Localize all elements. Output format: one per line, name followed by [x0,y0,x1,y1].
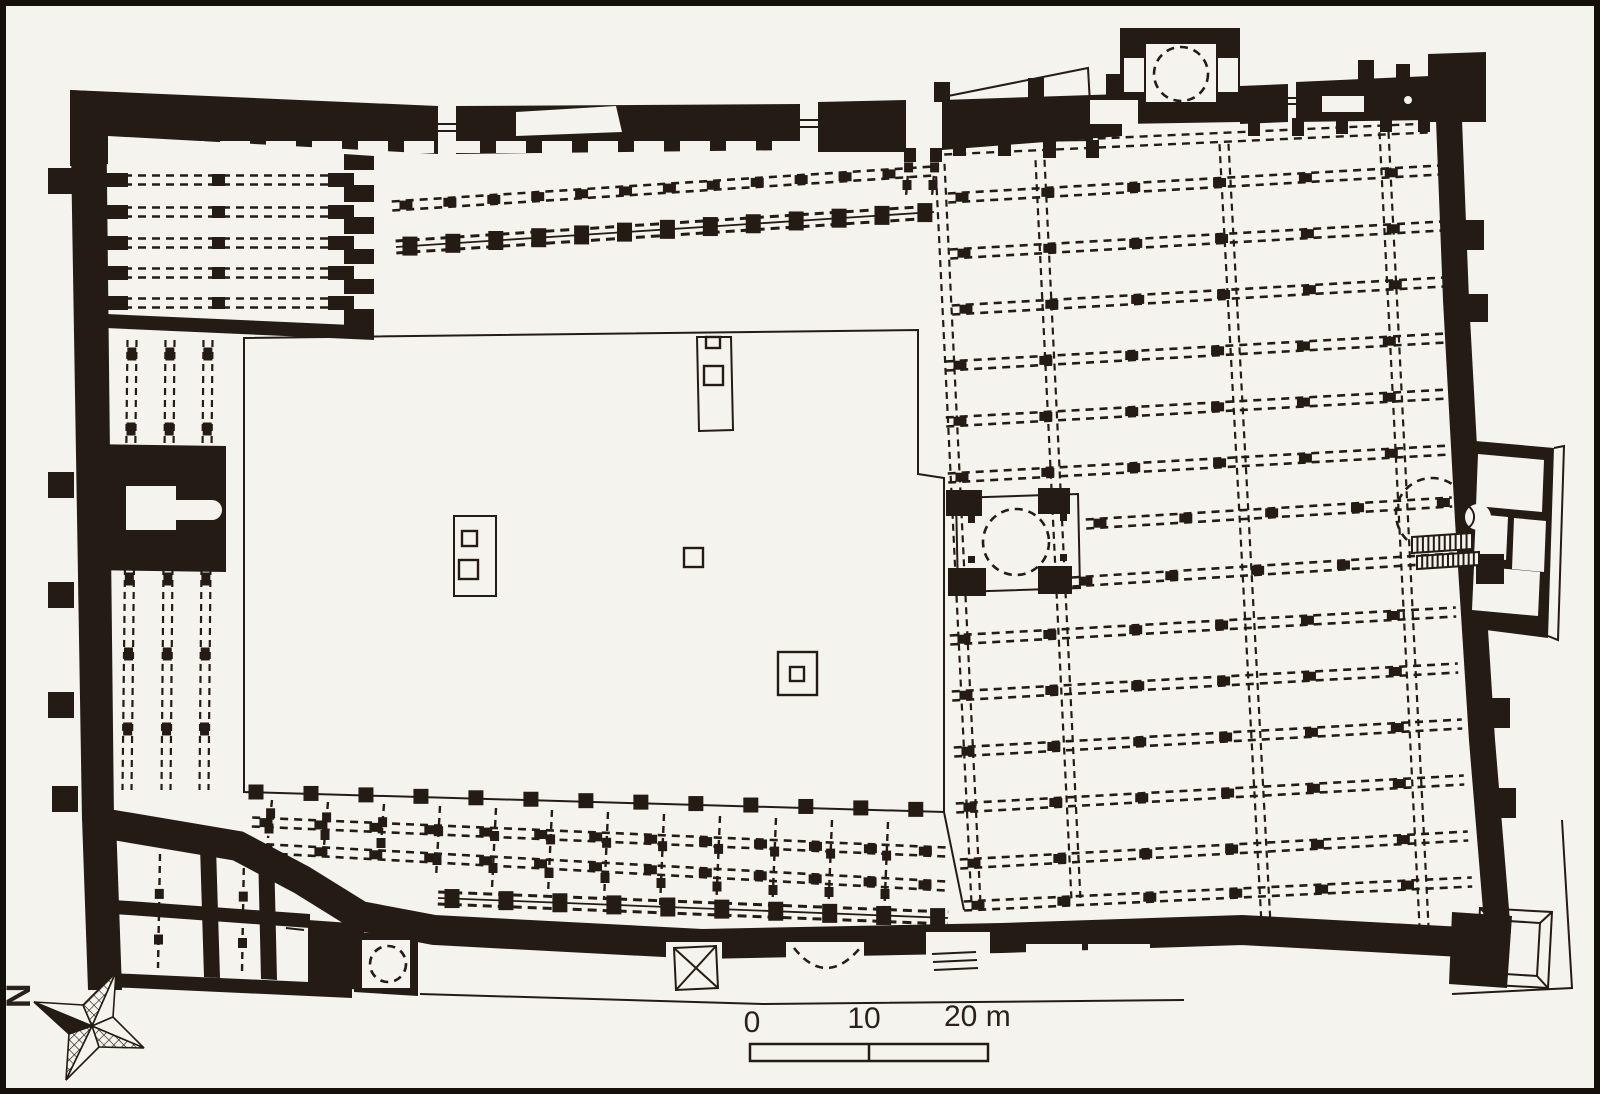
pier [881,889,890,899]
pier [619,186,632,195]
pier-block [946,490,982,516]
pier [1041,188,1054,197]
pier [488,231,503,250]
pier [1057,897,1070,906]
pier [163,572,172,585]
pier [127,422,136,435]
wall-opening [1146,44,1216,102]
pier [660,898,675,917]
pier [1135,793,1148,802]
pier [154,935,163,945]
pier-block [1482,698,1510,728]
pier [1215,234,1228,243]
floor-plan-svg: N01020 m [0,0,1600,1094]
pier [699,837,712,846]
pier-block [1248,118,1260,136]
pier [239,892,248,902]
pier [1301,616,1314,625]
pier [754,871,767,880]
pier [1133,737,1146,746]
pier [314,847,327,856]
wall-opening [1124,58,1144,92]
pier-block [930,148,942,162]
pier-block [948,568,986,596]
pier [203,422,212,435]
pier-block [1380,114,1392,132]
pier-block [102,236,128,250]
pier-block [904,148,916,162]
pier [531,228,546,247]
pier [1391,723,1404,732]
pier-block [212,267,225,279]
wall-opening [1322,96,1364,112]
pier [904,162,913,172]
pier-block [968,556,975,563]
pier [124,647,133,660]
pier [809,842,822,851]
pier [743,798,758,813]
pier [1311,840,1324,849]
pier-block [1488,788,1516,818]
pier [918,880,931,889]
pier [839,172,852,181]
pier [1039,412,1052,421]
pier [798,799,813,814]
pier [929,180,938,190]
pier [601,873,610,883]
wall-opening [1088,944,1150,986]
pier [1229,889,1242,898]
pier [606,895,621,914]
pier [165,422,174,435]
pier-block [1358,60,1374,80]
pier [644,865,657,874]
wall-notch [266,141,296,153]
pier [545,868,554,878]
pier [127,347,136,360]
pier [589,862,602,871]
pier [930,162,939,172]
scale-label: 0 [744,1006,761,1039]
pier [1219,733,1232,742]
pier [1299,454,1312,463]
wall-notch [772,141,802,153]
pier-block [212,206,225,218]
pier-block [1060,554,1067,561]
pier [789,211,804,230]
pier [1127,183,1140,192]
pier-block [998,138,1011,156]
pier [546,834,555,844]
pier [955,473,968,482]
pier [1297,398,1310,407]
pier [378,817,387,827]
wall-notch [220,141,250,153]
pier-block [328,173,354,187]
wall-notch [312,141,342,153]
wall-opening [1476,454,1544,512]
pier [1389,667,1402,676]
wall-niche [166,500,222,520]
pier [714,844,723,854]
pier [746,214,761,233]
pier [971,901,984,910]
pier [402,237,417,256]
pier [433,855,442,865]
pier [1131,681,1144,690]
pier [574,225,589,244]
pier [633,795,648,810]
pier [1215,620,1228,629]
pier [534,830,547,839]
pier [399,201,412,210]
pier-block [328,296,354,310]
pier [919,847,932,856]
pier [531,192,544,201]
pier [489,863,498,873]
pier [534,859,547,868]
wall-notch [542,141,572,153]
pier [768,902,783,921]
pier [434,826,443,836]
pier [1127,463,1140,472]
pier-block [1060,514,1067,521]
pier [200,722,209,735]
pier [853,800,868,815]
pier [1401,881,1414,890]
pier [903,180,912,190]
page-root: N01020 m [0,0,1600,1094]
pier [660,220,675,239]
pier-block [328,236,354,250]
wall-notch [588,141,618,153]
pier [707,181,720,190]
pier [959,305,972,314]
pier [957,249,970,258]
pier-block [1292,118,1304,136]
pier [377,838,386,848]
pier-block [1418,114,1430,132]
pier-block [1086,140,1099,158]
pier [1139,849,1152,858]
pier [1211,346,1224,355]
pier [1179,513,1192,522]
pier [123,722,132,735]
minbar-stair [1412,533,1472,553]
pier [955,193,968,202]
pier [322,812,331,822]
pier [825,887,834,897]
pier [155,889,164,899]
pier [864,877,877,886]
pier [1301,229,1314,238]
pier [713,882,722,892]
pier [1043,630,1056,639]
pier [1307,784,1320,793]
pier [1041,468,1054,477]
pier-block [1106,74,1122,96]
pier [201,647,210,660]
pier [751,178,764,187]
pier [487,195,500,204]
pier [203,347,212,360]
pier [644,835,657,844]
pier [498,891,513,910]
pier [201,572,210,585]
wall-notch [634,141,664,153]
pier [1213,178,1226,187]
pier [882,851,891,861]
pier-block [934,82,950,102]
wall-notch [496,141,526,153]
pier [917,203,932,222]
pier-block [1396,64,1410,82]
pier-block [1038,488,1070,514]
pier-block [968,516,975,523]
pier [589,832,602,841]
pier [1393,779,1406,788]
pier [1125,407,1138,416]
pier [699,868,712,877]
pier [953,417,966,426]
pier-block [328,205,354,219]
pier-block [1458,220,1484,250]
scale-label: 10 [847,1002,880,1035]
pier [552,893,567,912]
pier-block [52,786,78,812]
pier [1125,351,1138,360]
pier-block [1043,140,1056,158]
wall-notch [450,141,480,153]
pier [1079,577,1092,586]
pier [321,830,330,840]
pier [663,184,676,193]
pier [1297,341,1310,350]
pier [1315,885,1328,894]
pier [165,347,174,360]
pier-block [212,237,225,249]
pier [754,839,767,848]
pier [445,234,460,253]
pier [1251,566,1264,575]
pier [1337,560,1350,569]
pier [163,647,172,660]
pier-block [1028,78,1044,98]
pier [809,874,822,883]
pier [1053,854,1066,863]
pier [602,838,611,848]
wall-notch [726,141,756,153]
pier [1305,728,1318,737]
pier [1303,672,1316,681]
pier-block [1038,566,1072,594]
pier [266,808,275,818]
pier [769,885,778,895]
pier [162,722,171,735]
pier [795,175,808,184]
pier-block [1336,116,1348,134]
pier [1265,508,1278,517]
pier-block [48,692,74,718]
scale-label: 20 m [944,1000,1011,1033]
pier [1049,798,1062,807]
wall-segment [1240,84,1288,124]
pier [770,847,779,857]
pier [658,841,667,851]
pier [444,889,459,908]
pier [826,849,835,859]
pier [575,189,588,198]
pier [1211,402,1224,411]
pier [703,217,718,236]
wall-notch [680,141,710,153]
pier [1165,571,1178,580]
pier [882,169,895,178]
pier [1129,625,1142,634]
pier [1213,458,1226,467]
pier-block [1462,294,1488,322]
wall-opening [1090,100,1138,124]
pier [1047,742,1060,751]
pier [1045,686,1058,695]
wall-notch [404,141,434,153]
pier [1129,239,1142,248]
pier-block [212,297,225,309]
pier [688,796,703,811]
pier-block [953,138,966,156]
pier-block [1476,554,1504,584]
pier [238,938,247,948]
pier [1143,893,1156,902]
pier [657,878,666,888]
pier [265,824,274,834]
pier [908,802,923,817]
pier [1397,835,1410,844]
pier [1299,173,1312,182]
pier [822,904,837,923]
pier-block [102,173,128,187]
pier-block [102,296,128,310]
wall-opening [1512,518,1546,572]
wall-opening [786,942,864,992]
pier [1351,503,1364,512]
pier-block [48,472,74,498]
pier [617,223,632,242]
pier [864,844,877,853]
pier [1303,285,1316,294]
wall-notch [174,141,204,153]
wall-notch [128,141,158,153]
pier [1217,676,1230,685]
wall-ring-detail [1403,95,1413,105]
pier [874,206,889,225]
wall-opening [1218,58,1238,92]
wall-notch [358,141,388,153]
pier [443,198,456,207]
pier [1387,611,1400,620]
pier [125,572,134,585]
pier-block [48,582,74,608]
pier-block [328,266,354,280]
wall-segment [818,100,906,152]
pier-block [212,174,225,186]
pier [490,831,499,841]
pier [1221,789,1234,798]
pier-block [102,266,128,280]
mihrab-niche [1465,504,1491,530]
pier [1437,498,1450,507]
pier [832,209,847,228]
pier [1131,295,1144,304]
pier [1093,519,1106,528]
pier-block [48,168,74,194]
pier-block [102,205,128,219]
pier [1225,845,1238,854]
wall-opening [1026,944,1082,986]
pier [963,803,976,812]
